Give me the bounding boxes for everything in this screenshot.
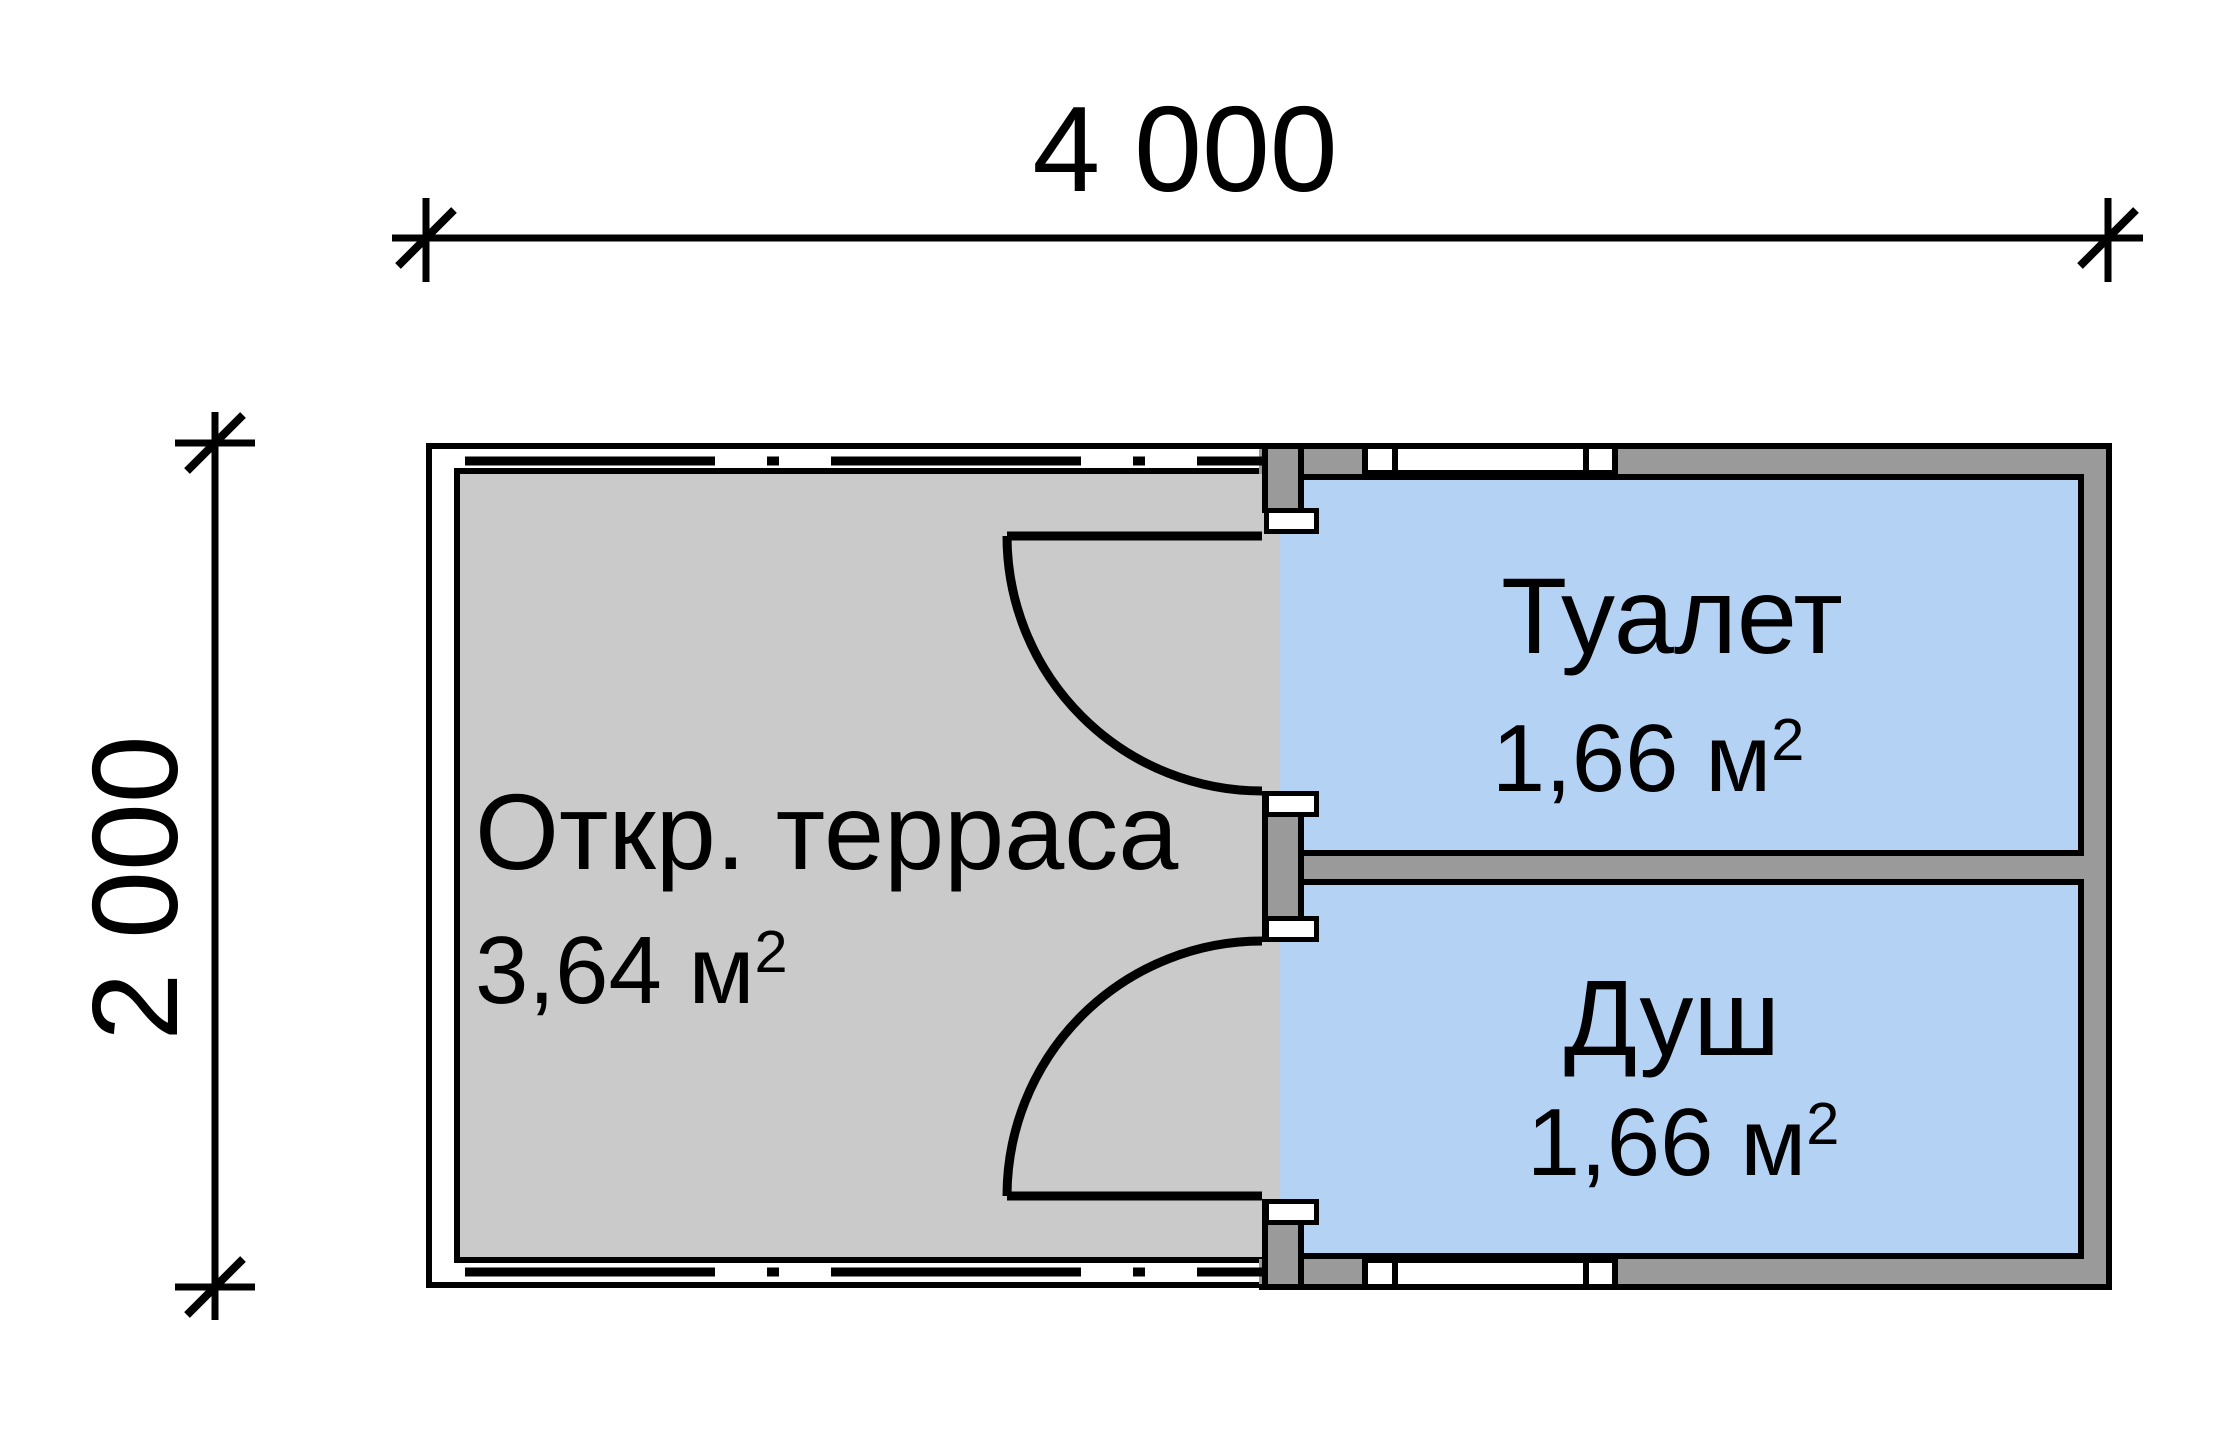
partition-stub-top (1262, 449, 1304, 513)
window-mullion (1392, 449, 1398, 476)
terrace-area-value: 3,64 м (475, 917, 755, 1024)
shower-window (1362, 1257, 1618, 1284)
toilet-window (1362, 449, 1618, 476)
terrace-area-sup: 2 (755, 918, 788, 985)
dimension-label-width: 4 000 (1032, 88, 1337, 210)
door-jamb (1264, 508, 1319, 534)
door-jamb (1264, 1199, 1319, 1225)
dimension-label-height: 2 000 (74, 735, 196, 1040)
wall-divider (1283, 856, 2084, 879)
wall-right (2084, 449, 2106, 1284)
window-mullion (1583, 1257, 1589, 1284)
toilet-area-value: 1,66 м (1492, 705, 1772, 812)
terrace-name: Откр. терраса (475, 778, 1178, 886)
floor-plan: 4 000 2 000 Откр. терраса 3,64 м2 Туалет… (0, 0, 2235, 1438)
shower-area-sup: 2 (1806, 1090, 1839, 1157)
toilet-area: 1,66 м2 (1492, 710, 1805, 807)
shower-area: 1,66 м2 (1527, 1094, 1840, 1191)
toilet-area-sup: 2 (1771, 706, 1804, 773)
shower-area-value: 1,66 м (1527, 1089, 1807, 1196)
door-jamb (1264, 916, 1319, 942)
terrace-area: 3,64 м2 (475, 922, 788, 1019)
window-mullion (1583, 449, 1589, 476)
door-jamb (1264, 791, 1319, 817)
shower-name: Душ (1564, 964, 1780, 1072)
toilet-name: Туалет (1501, 562, 1843, 670)
window-mullion (1392, 1257, 1398, 1284)
